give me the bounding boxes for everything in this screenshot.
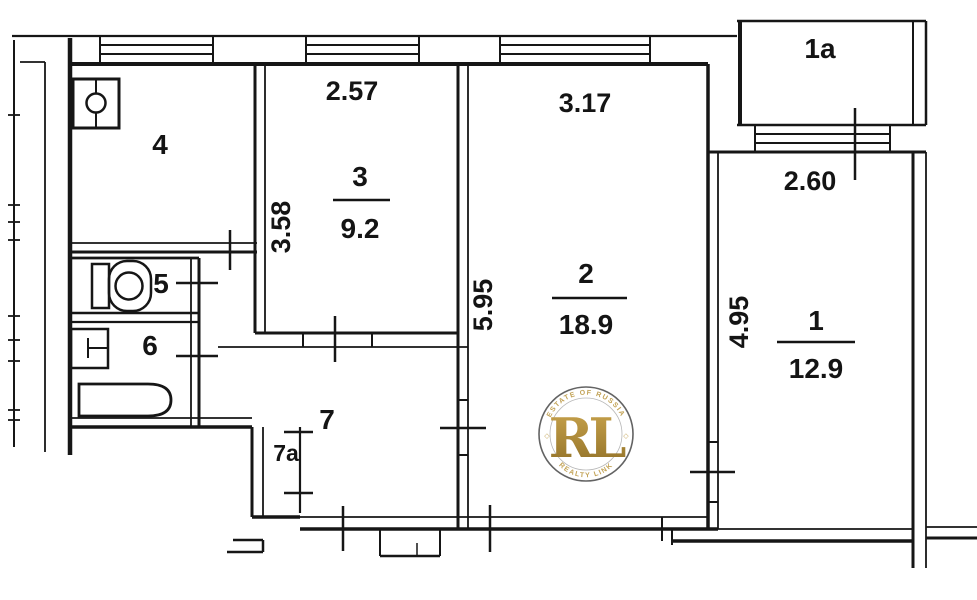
washbasin-icon xyxy=(71,329,108,368)
room-1-dim-width: 2.60 xyxy=(784,166,837,196)
bathtub-icon xyxy=(79,384,171,416)
window-room4 xyxy=(100,36,213,64)
entrance-porch xyxy=(380,529,440,556)
entrance-step xyxy=(227,540,263,552)
room-2-area: 18.9 xyxy=(559,309,614,340)
room-1-area: 12.9 xyxy=(789,353,844,384)
floor-plan-svg: 4 5 6 7 7a 1a 2.57 3.58 3 9.2 3.17 5.95 … xyxy=(0,0,977,600)
windows xyxy=(100,36,650,64)
room-2-dim-width: 3.17 xyxy=(559,88,612,118)
room-1a-label: 1a xyxy=(804,33,836,64)
room-1-label: 1 xyxy=(808,305,824,336)
room-1-dim-height: 4.95 xyxy=(724,296,754,349)
watermark-right-mark-icon: ◇ xyxy=(623,433,629,440)
room-7-label: 7 xyxy=(319,404,335,435)
floor-plan-image: 4 5 6 7 7a 1a 2.57 3.58 3 9.2 3.17 5.95 … xyxy=(0,0,977,600)
room-3-area: 9.2 xyxy=(341,213,380,244)
room-5-label: 5 xyxy=(153,268,169,299)
room-2-dim-height: 5.95 xyxy=(468,279,498,332)
room-6-label: 6 xyxy=(142,330,158,361)
window-room3 xyxy=(306,36,419,64)
room-7a-label: 7a xyxy=(273,440,299,466)
watermark-initials: RL xyxy=(549,406,626,470)
window-room2 xyxy=(500,36,650,64)
kitchen-sink-icon xyxy=(73,79,119,128)
room-2-label: 2 xyxy=(578,258,594,289)
room-3-dim-width: 2.57 xyxy=(326,76,379,106)
room-3-dim-height: 3.58 xyxy=(266,201,296,254)
room-4-label: 4 xyxy=(152,129,168,160)
toilet-icon xyxy=(92,261,151,311)
room-3-label: 3 xyxy=(352,161,368,192)
labels: 4 5 6 7 7a 1a 2.57 3.58 3 9.2 3.17 5.95 … xyxy=(142,33,855,466)
watermark-stamp: ESTATE OF RUSSIA REALTY LINK ◇ ◇ RL xyxy=(539,387,633,481)
door-ticks xyxy=(176,230,735,552)
